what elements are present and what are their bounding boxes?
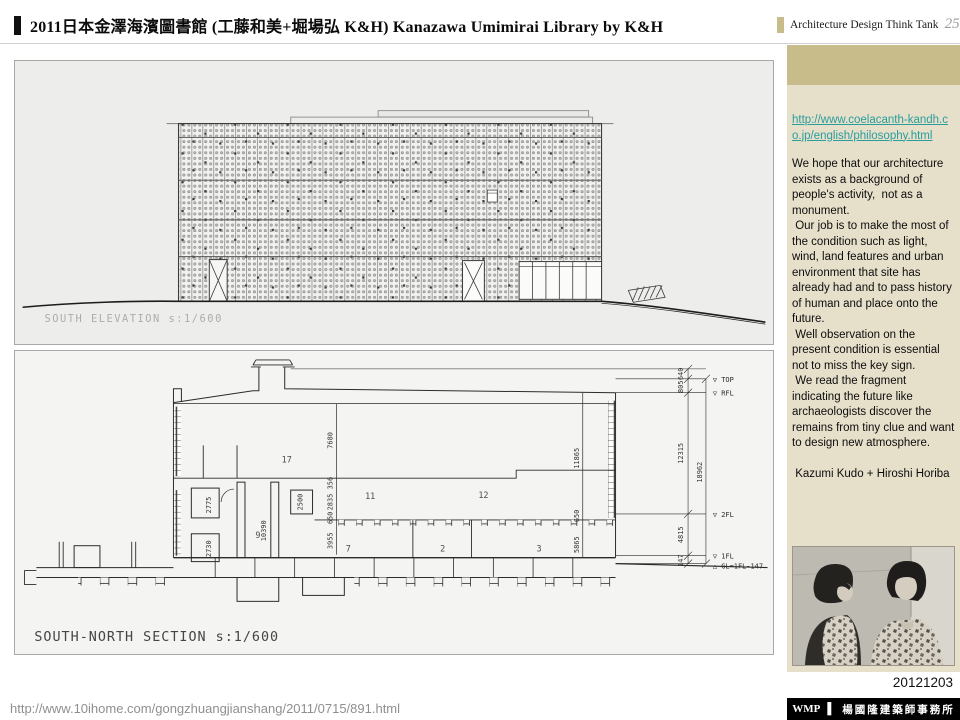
date-stamp: 20121203: [787, 675, 953, 690]
rooftop-structure: [291, 111, 593, 124]
total-dimension-label: 18962: [696, 462, 704, 483]
slide: 2011日本金澤海濱圖書館 (工藤和美+堀場弘 K&H) Kanazawa Um…: [0, 0, 960, 720]
dimension-label: 356: [326, 477, 334, 490]
room-label: 3: [536, 544, 541, 554]
south-elevation-drawing: SOUTH ELEVATION s:1/600: [15, 61, 773, 344]
dimension-label: 4815: [677, 526, 685, 543]
south-north-section-drawing: 17 11 12 9 7 2 3 2775 2730 10390 2500 76…: [15, 351, 773, 654]
dimension-label: 650: [573, 510, 581, 523]
brand-bar-icon: [777, 17, 784, 33]
glazed-wall: [519, 262, 601, 300]
ramp-hatch: [628, 285, 665, 302]
dimension-label: 2730: [205, 540, 213, 557]
header-divider: [0, 43, 960, 44]
dimension-label: 2835: [326, 494, 334, 511]
dimension-label: 147: [677, 554, 685, 567]
philosophy-paragraph: We read the fragment indicating the futu…: [792, 374, 955, 452]
room-label: 11: [365, 491, 375, 501]
header-title-block: 2011日本金澤海濱圖書館 (工藤和美+堀場弘 K&H) Kanazawa Um…: [14, 13, 663, 37]
footer-separator-icon: ▌: [827, 703, 835, 715]
footer-brand-bar: WMP ▌ 楊國隆建築師事務所: [787, 698, 960, 720]
philosophy-link[interactable]: http://www.coelacanth-kandh.co.jp/englis…: [792, 113, 955, 144]
facade-small-door-detail: [487, 190, 497, 202]
dimension-label: 7680: [326, 432, 334, 449]
sidebar-accent-block: [787, 45, 960, 85]
header-brand-block: Architecture Design Think Tank 25: [777, 16, 955, 33]
dimension-label: 805: [677, 380, 685, 393]
section-drawing-panel: 17 11 12 9 7 2 3 2775 2730 10390 2500 76…: [14, 350, 774, 655]
philosophy-paragraph: Our job is to make the most of the condi…: [792, 219, 955, 328]
brand-title: Architecture Design Think Tank: [790, 19, 939, 31]
entrance-left-x-panel: [209, 260, 227, 302]
footer-office-name: 楊國隆建築師事務所: [842, 702, 955, 717]
entrance-right-x-door: [463, 261, 485, 302]
dimension-label: 10390: [260, 520, 268, 541]
dimension-label: 5865: [573, 536, 581, 553]
room-label: 7: [346, 544, 351, 554]
dimension-lines: [291, 365, 710, 568]
elevation-caption: SOUTH ELEVATION s:1/600: [44, 313, 222, 325]
dimension-label: 3955: [326, 532, 334, 549]
portrait-photo: [792, 546, 955, 666]
dimension-label: 2500: [297, 494, 305, 511]
section-structure: [24, 360, 767, 601]
page-number: 25: [945, 16, 960, 33]
room-label: 2: [440, 544, 445, 554]
dimension-label: 650: [326, 512, 334, 525]
page-title: 2011日本金澤海濱圖書館 (工藤和美+堀場弘 K&H) Kanazawa Um…: [30, 13, 663, 37]
room-label: 17: [282, 454, 292, 464]
level-label: △ GL=1FL-147: [713, 563, 763, 571]
philosophy-paragraph: Well observation on the present conditio…: [792, 328, 955, 375]
footer-brand-wmp: WMP: [792, 703, 820, 715]
level-label: ▽ 1FL: [713, 553, 734, 561]
source-url: http://www.10ihome.com/gongzhuangjiansha…: [10, 701, 400, 716]
dimension-label: 2775: [205, 497, 213, 514]
elevation-drawing-panel: SOUTH ELEVATION s:1/600: [14, 60, 774, 345]
section-caption: SOUTH-NORTH SECTION s:1/600: [34, 630, 279, 645]
dimension-labels: 2775 2730 10390 2500 7680 356 2835 650 3…: [205, 368, 704, 567]
title-bar-icon: [14, 16, 21, 35]
sidebar-content: http://www.coelacanth-kandh.co.jp/englis…: [787, 85, 960, 482]
level-markers: ▽ TOP ▽ RFL ▽ 2FL ▽ 1FL △ GL=1FL-147: [713, 376, 763, 571]
portrait-photo-image: [793, 547, 954, 665]
level-label: ▽ TOP: [713, 376, 734, 384]
architects-credit: Kazumi Kudo + Hiroshi Horiba: [792, 467, 955, 483]
dimension-label: 12315: [677, 443, 685, 464]
room-label: 12: [478, 490, 488, 500]
dimension-label: 11865: [573, 448, 581, 469]
level-label: ▽ RFL: [713, 390, 734, 398]
dimension-label: 640: [677, 368, 685, 381]
philosophy-paragraph: We hope that our architecture exists as …: [792, 157, 955, 219]
level-label: ▽ 2FL: [713, 511, 734, 519]
